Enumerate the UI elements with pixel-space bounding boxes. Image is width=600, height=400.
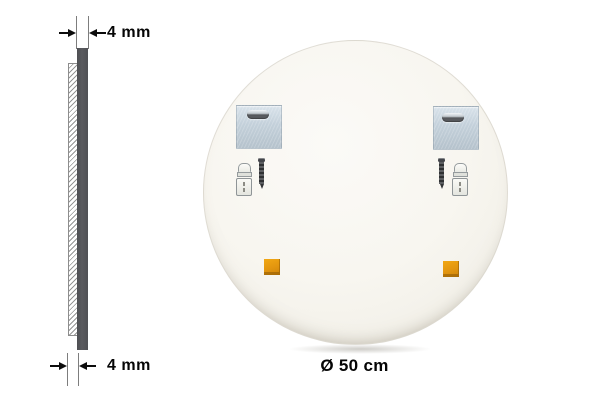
thickness-label-top: 4 mm [107,24,151,42]
anchor-marking [459,188,461,192]
arrowhead-icon [68,29,76,37]
arrow-shaft [59,32,68,34]
anchor-head [238,163,251,172]
arrowhead-icon [79,362,87,370]
diameter-label: Ø 50 cm [203,356,506,376]
screw-tip [260,184,264,189]
product-diagram-canvas: 4 mm 4 mm [0,0,600,400]
wall-anchor-right [452,163,468,196]
dimension-extension-line [76,16,77,49]
screw-thread [259,162,264,184]
anchor-flange [237,172,252,177]
anchor-flange [453,172,468,177]
dimension-arrow-right-icon [50,362,67,370]
mounting-bracket-right [433,106,479,150]
arrow-shaft [87,365,96,367]
anchor-marking [243,182,245,186]
mounting-bracket-left [236,105,282,149]
arrow-shaft [97,32,106,34]
anchor-body [236,178,252,196]
dimension-arrow-left-icon [79,362,96,370]
mirror-edge-bar [77,48,88,350]
screw-right-icon [438,158,445,189]
adhesive-pad-right [443,261,459,277]
dimension-arrow-right-icon [59,29,76,37]
arrowhead-icon [89,29,97,37]
screw-thread [439,162,444,184]
thickness-label-bottom: 4 mm [107,357,151,375]
dimension-arrow-left-icon [89,29,106,37]
anchor-head [454,163,467,172]
screw-tip [440,184,444,189]
adhesive-pad-left [264,259,280,275]
anchor-body [452,178,468,196]
arrow-shaft [50,365,59,367]
anchor-marking [459,182,461,186]
keyhole-slot-icon [442,113,464,122]
screw-left-icon [258,158,265,189]
arrowhead-icon [59,362,67,370]
wall-anchor-left [236,163,252,196]
mirror-ground-shadow [288,344,432,354]
anchor-marking [243,188,245,192]
dimension-extension-line [67,353,68,386]
keyhole-slot-icon [247,110,269,119]
